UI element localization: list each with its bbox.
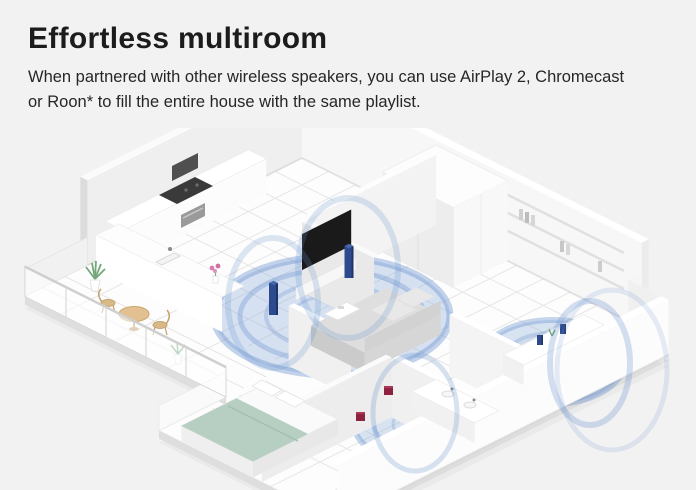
apartment-illustration [0,128,696,490]
speaker-tower-right [345,244,354,278]
bedroom-speaker-right [384,386,393,395]
section-title: Effortless multiroom [0,0,696,56]
speaker-tower-left [269,281,278,315]
apartment-illustration-svg [0,128,696,490]
faucet [168,247,172,251]
section-description: When partnered with other wireless speak… [28,65,628,115]
bedroom-speaker-left [356,412,365,421]
multiroom-section: Effortless multiroom When partnered with… [0,0,696,490]
study-speaker-left [537,335,543,345]
